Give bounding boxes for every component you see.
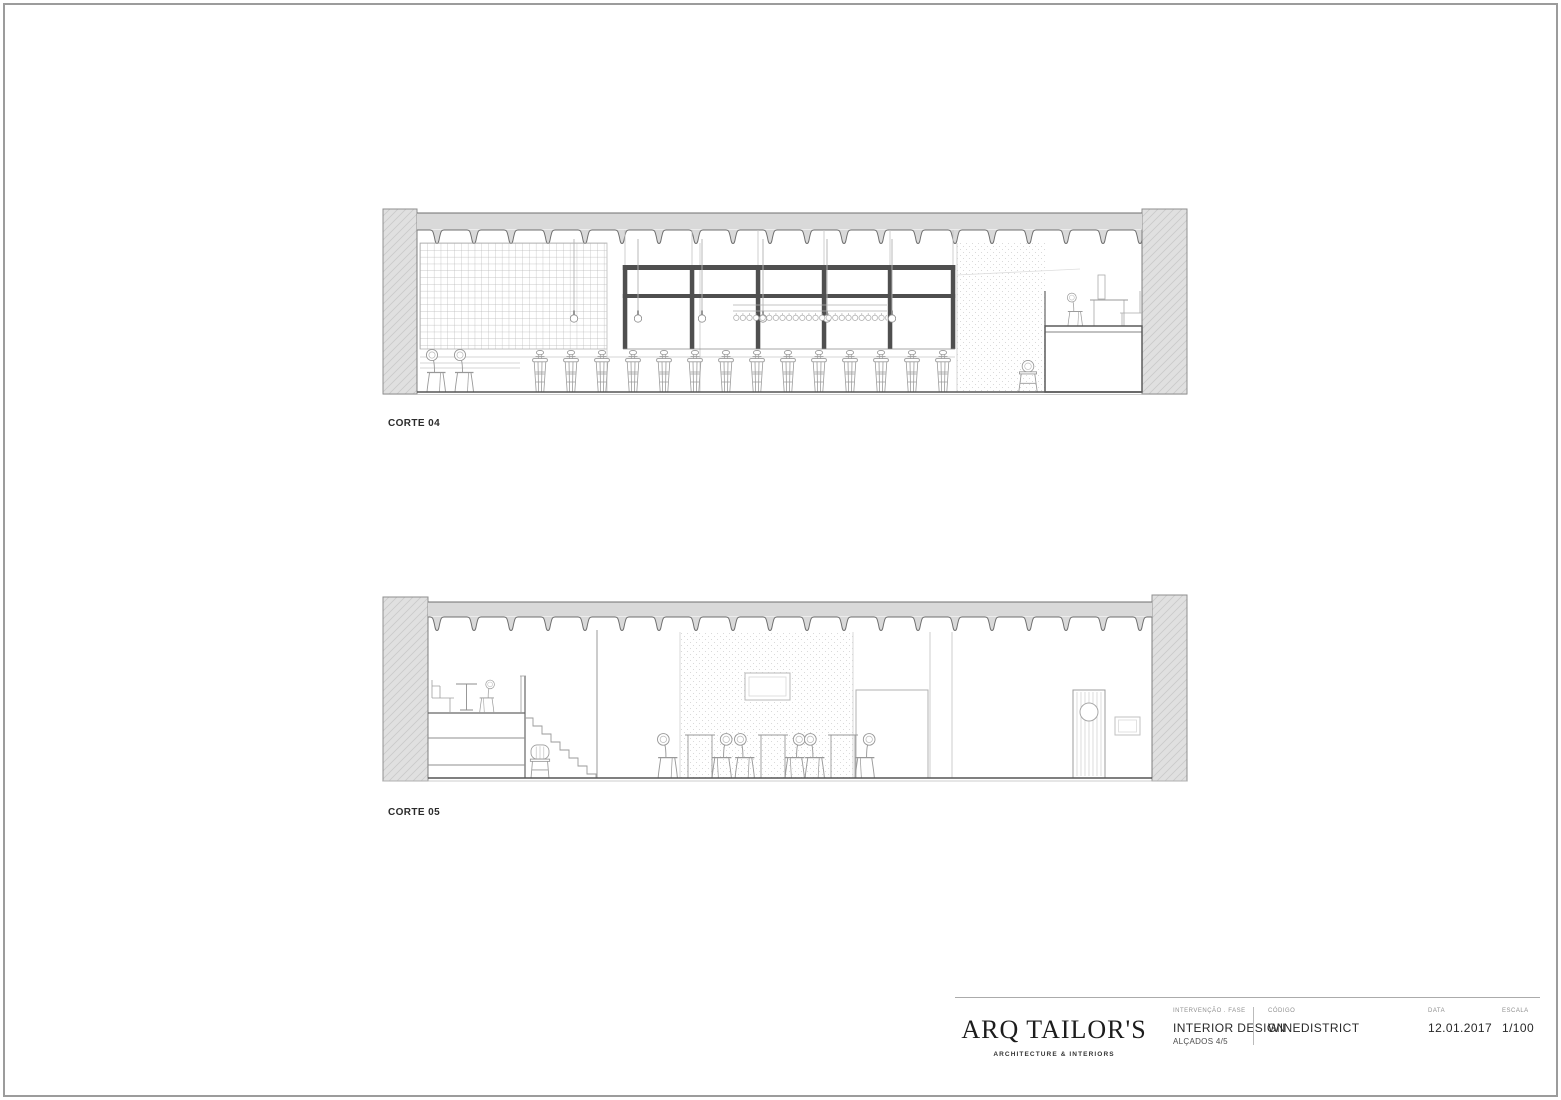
shelf-unit xyxy=(1098,275,1105,299)
staircase xyxy=(525,718,596,778)
doorway xyxy=(856,632,952,778)
drawing-label-corte-04: CORTE 04 xyxy=(388,418,440,429)
booth-bench xyxy=(432,680,454,713)
counter-front xyxy=(1045,326,1142,392)
field-code-label: CÓDIGO xyxy=(1268,1008,1359,1014)
field-date-label: DATA xyxy=(1428,1008,1492,1014)
platform-chair xyxy=(1067,293,1082,327)
studio-logo: ARQ TAILOR'S xyxy=(956,1015,1152,1045)
cafe-chairs xyxy=(426,349,473,392)
field-phase-extra: ALÇADOS 4/5 xyxy=(1173,1037,1286,1046)
mezzanine-chair xyxy=(480,680,495,713)
porthole-window xyxy=(1080,703,1098,721)
glazed-partition xyxy=(623,230,956,349)
chair xyxy=(530,745,549,778)
slatted-door xyxy=(1073,690,1105,778)
small-frame xyxy=(1115,717,1140,735)
pendant-light xyxy=(759,239,766,322)
pendant-lights xyxy=(570,239,895,322)
floor-line xyxy=(383,392,1187,395)
pendant-light xyxy=(698,239,705,322)
mezzanine xyxy=(428,676,526,778)
drawing-label-corte-05: CORTE 05 xyxy=(388,807,440,818)
textured-wall xyxy=(680,632,853,778)
field-date-value: 12.01.2017 xyxy=(1428,1021,1492,1035)
field-scale-label: ESCALA xyxy=(1502,1008,1534,1014)
field-code: CÓDIGO WINEDISTRICT xyxy=(1268,1008,1359,1035)
field-date: DATA 12.01.2017 xyxy=(1428,1008,1492,1035)
sheet-border xyxy=(3,3,1558,1097)
host-counter-area xyxy=(957,243,1142,392)
pedestal-table xyxy=(456,684,477,710)
dining-chair xyxy=(658,734,678,778)
bench-seat xyxy=(1120,291,1142,326)
title-block-rule xyxy=(955,997,1540,998)
field-scale: ESCALA 1/100 xyxy=(1502,1008,1534,1035)
cafe-chair xyxy=(454,349,473,392)
field-code-value: WINEDISTRICT xyxy=(1268,1021,1359,1035)
cafe-chair xyxy=(426,349,445,392)
title-block-divider xyxy=(1253,1007,1254,1045)
dining-chair xyxy=(855,734,875,778)
field-scale-value: 1/100 xyxy=(1502,1021,1534,1035)
pendant-light xyxy=(634,239,641,322)
studio-logo-subtitle: ARCHITECTURE & INTERIORS xyxy=(956,1051,1152,1058)
section-drawing-corte-04 xyxy=(380,203,1190,408)
section-drawing-corte-05 xyxy=(380,590,1190,802)
floor-line xyxy=(383,778,1187,781)
